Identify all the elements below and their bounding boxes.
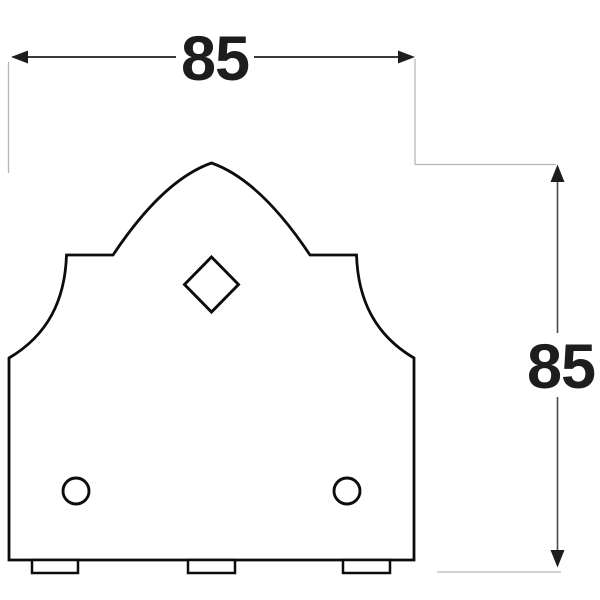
- screw-hole-left: [63, 478, 89, 504]
- width-dim-arrow-right: [398, 51, 415, 64]
- height-dim-arrow-top: [551, 165, 565, 183]
- bracket-drawing-svg: 85 85: [0, 0, 600, 600]
- width-dim-arrow-left: [11, 51, 28, 64]
- width-dimension-label: 85: [181, 24, 249, 94]
- bracket-tab-right: [343, 560, 390, 573]
- screw-hole-right: [334, 478, 360, 504]
- bracket-tab-left: [32, 560, 78, 573]
- height-dimension-label: 85: [527, 332, 595, 402]
- bracket-tab-center: [188, 560, 235, 573]
- height-dim-arrow-bottom: [551, 550, 565, 568]
- technical-drawing-canvas: 85 85: [0, 0, 600, 600]
